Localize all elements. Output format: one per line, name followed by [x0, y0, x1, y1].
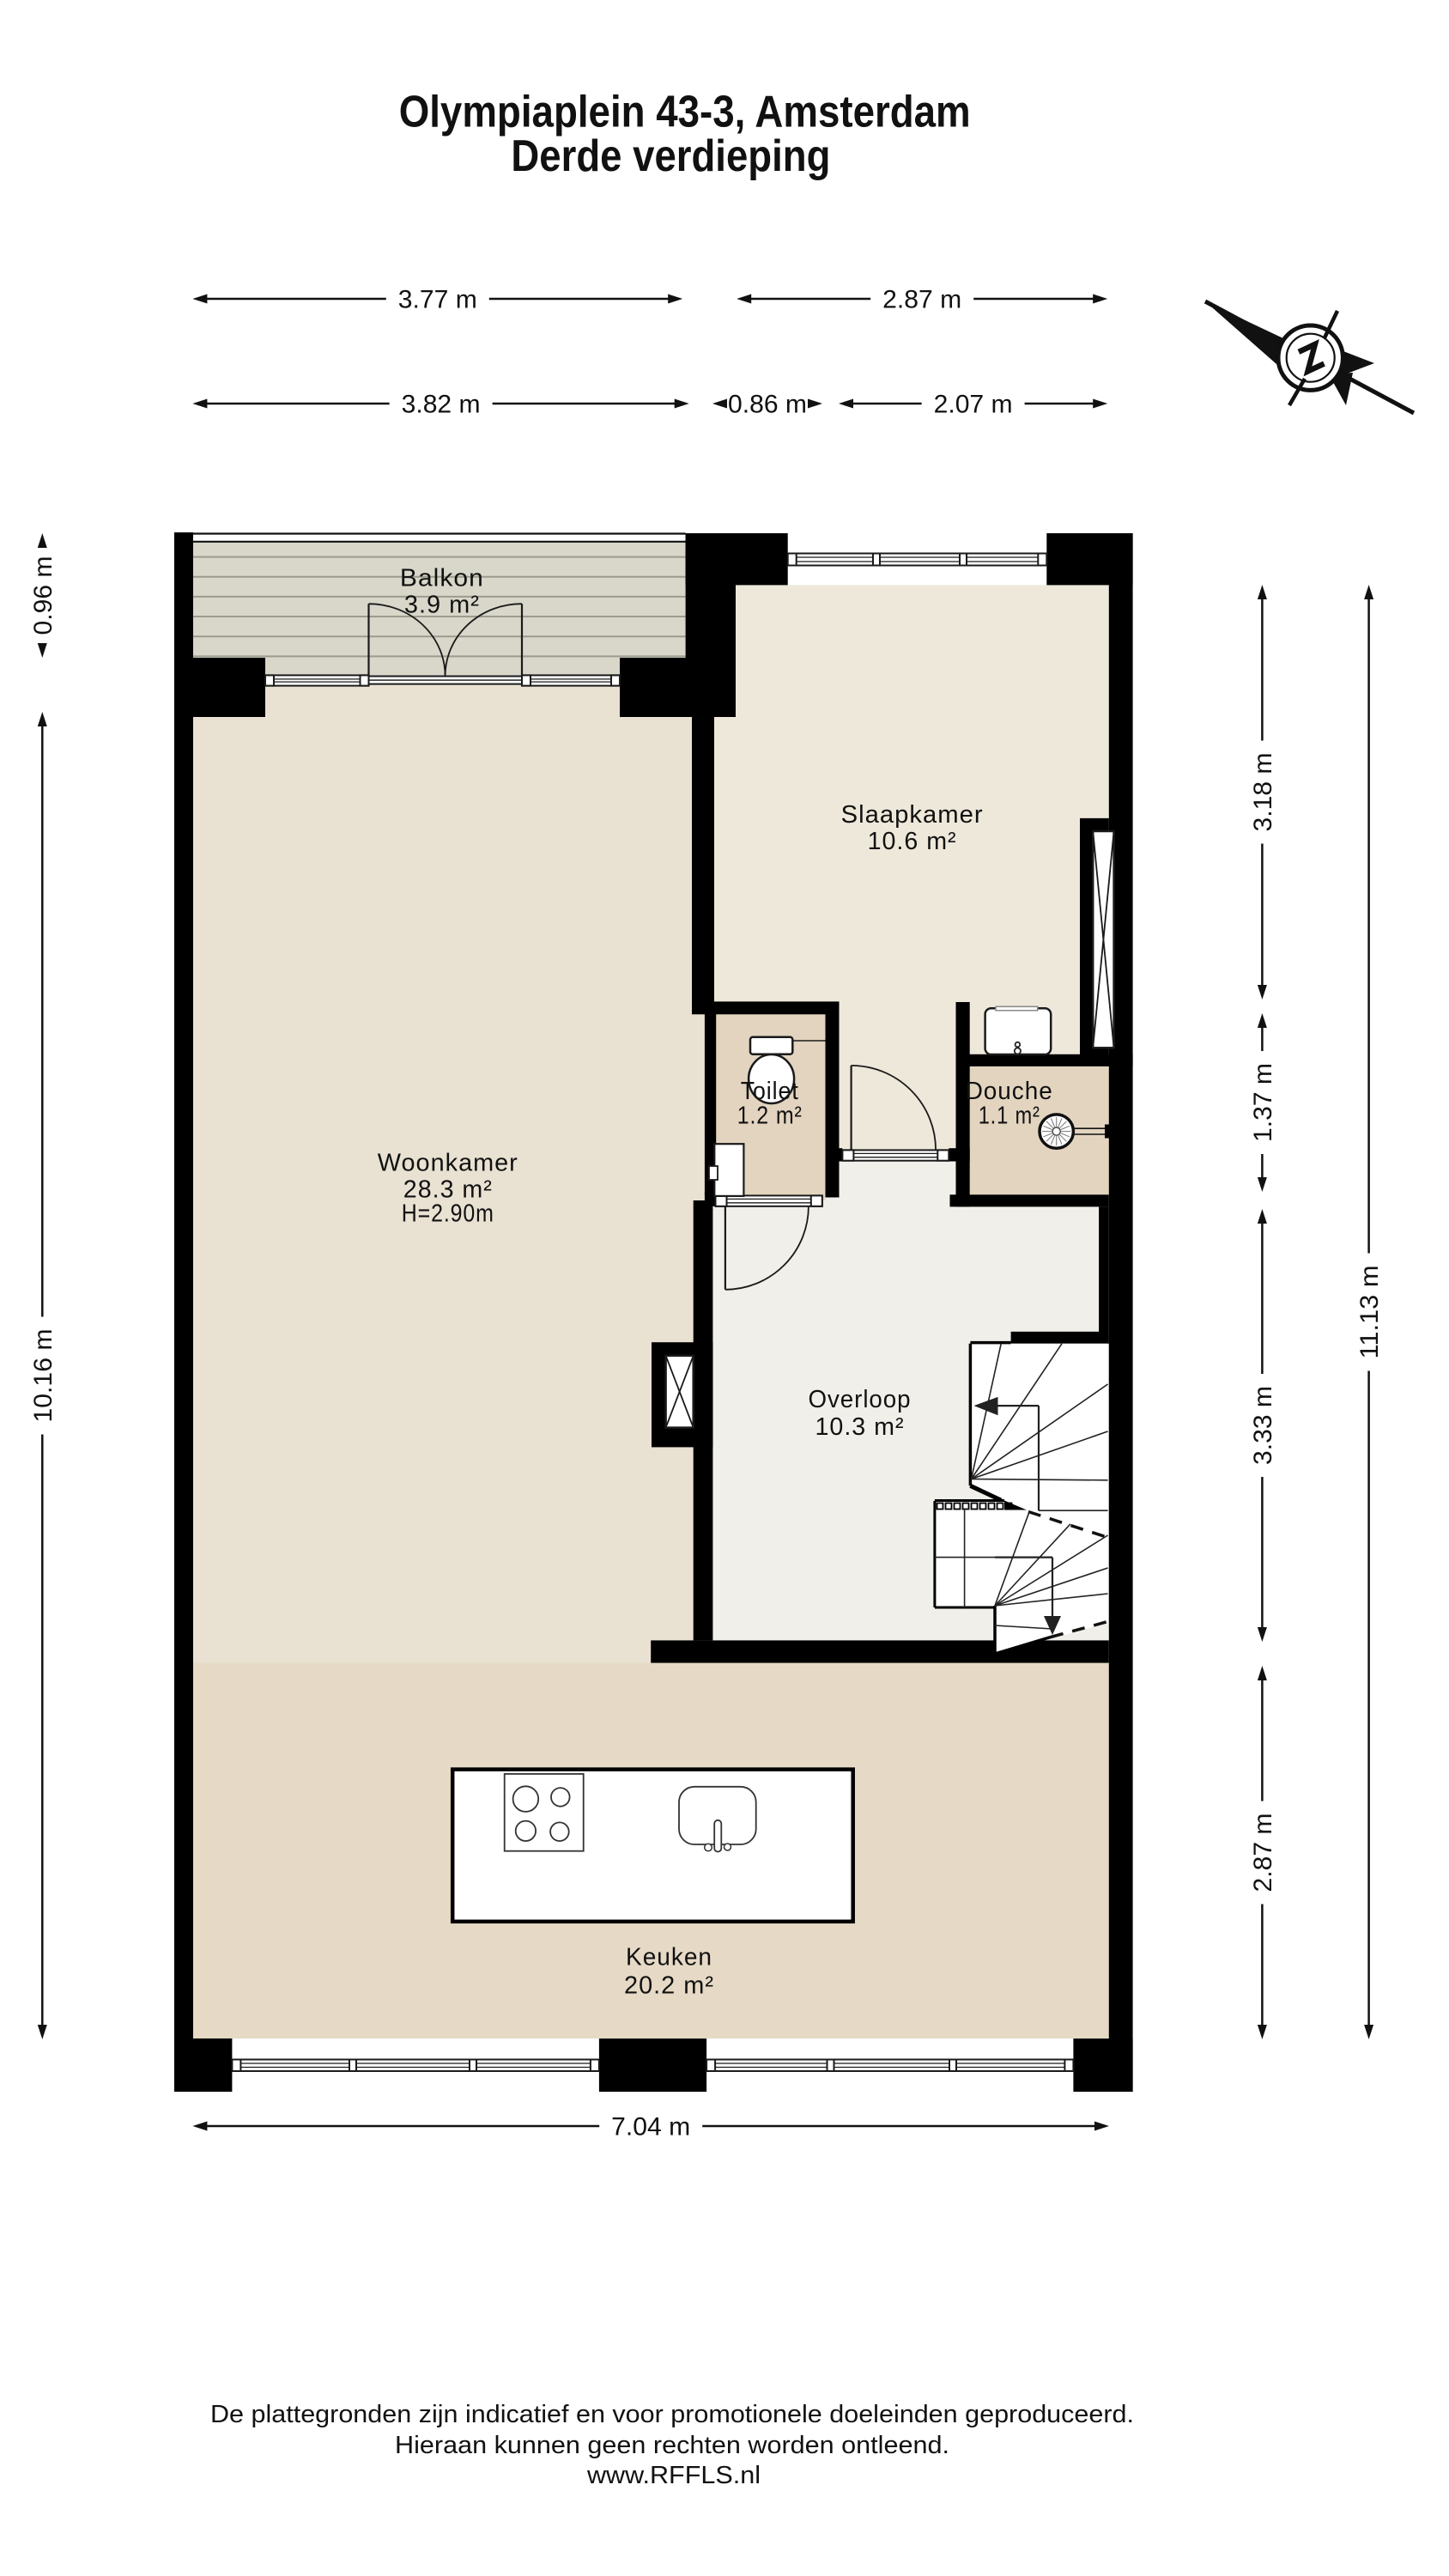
svg-text:3.9 m²: 3.9 m²: [404, 591, 480, 618]
svg-text:1.37 m: 1.37 m: [1249, 1063, 1277, 1142]
svg-text:Douche: Douche: [966, 1078, 1053, 1105]
svg-text:2.87 m: 2.87 m: [1249, 1814, 1277, 1893]
svg-text:De plattegronden zijn indicati: De plattegronden zijn indicatief en voor…: [210, 2401, 1134, 2428]
svg-text:Overloop: Overloop: [809, 1386, 912, 1413]
svg-text:7.04 m: 7.04 m: [611, 2113, 690, 2142]
svg-text:Toilet: Toilet: [741, 1078, 799, 1105]
svg-text:Balkon: Balkon: [400, 564, 484, 592]
svg-text:0.86 m: 0.86 m: [728, 391, 807, 419]
svg-text:2.07 m: 2.07 m: [934, 391, 1013, 419]
svg-text:1.2 m²: 1.2 m²: [737, 1103, 803, 1130]
svg-text:Hieraan kunnen geen rechten wo: Hieraan kunnen geen rechten worden ontle…: [395, 2432, 949, 2459]
svg-text:0.96 m: 0.96 m: [29, 556, 58, 635]
svg-text:3.18 m: 3.18 m: [1249, 753, 1277, 832]
svg-text:Slaapkamer: Slaapkamer: [841, 801, 984, 829]
svg-text:20.2 m²: 20.2 m²: [624, 1971, 714, 1999]
svg-text:1.1 m²: 1.1 m²: [979, 1103, 1040, 1130]
svg-text:3.82 m: 3.82 m: [402, 391, 481, 419]
svg-text:Keuken: Keuken: [626, 1943, 712, 1971]
svg-text:11.13 m: 11.13 m: [1355, 1266, 1384, 1359]
svg-text:10.3 m²: 10.3 m²: [815, 1413, 905, 1441]
svg-text:H=2.90m: H=2.90m: [402, 1200, 494, 1227]
svg-text:www.RFFLS.nl: www.RFFLS.nl: [586, 2462, 761, 2489]
svg-text:10.16 m: 10.16 m: [29, 1329, 58, 1423]
svg-text:3.77 m: 3.77 m: [398, 286, 477, 314]
svg-text:2.87 m: 2.87 m: [882, 286, 961, 314]
svg-text:Olympiaplein 43-3, Amsterdam: Olympiaplein 43-3, Amsterdam: [399, 88, 971, 137]
svg-text:Derde verdieping: Derde verdieping: [511, 131, 830, 181]
svg-text:10.6 m²: 10.6 m²: [868, 828, 957, 855]
svg-text:Woonkamer: Woonkamer: [378, 1150, 518, 1177]
svg-text:3.33 m: 3.33 m: [1249, 1386, 1277, 1465]
